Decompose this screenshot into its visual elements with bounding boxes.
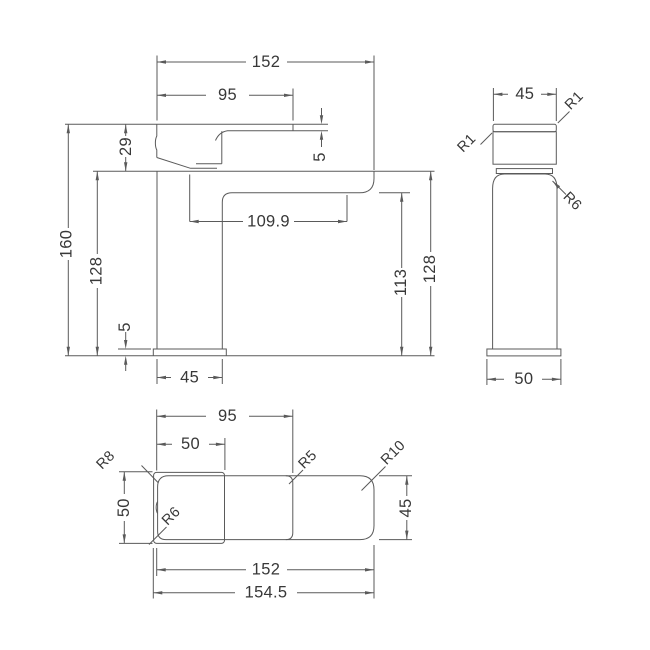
plan-view: 95 50 R8 R5 R10 R6 50 45 152 154.5 [94, 407, 415, 601]
plan-body-outline [158, 476, 374, 540]
side-seam-band [496, 169, 552, 174]
dim-front-height-right: 128 [421, 255, 439, 283]
dim-plan-overall-length: 154.5 [245, 584, 288, 602]
dim-plan-handle-length: 95 [218, 407, 237, 425]
dim-front-overall-height: 160 [57, 230, 75, 258]
dim-front-head-height: 29 [117, 137, 135, 156]
dim-front-handle-thickness: 5 [311, 152, 329, 161]
front-elevation-view: 152 95 29 5 160 128 109.9 113 128 45 5 [57, 53, 439, 387]
side-base-outline [487, 349, 561, 356]
dim-front-body-width: 45 [180, 368, 199, 386]
radius-label-plan-r5: R5 [296, 447, 321, 472]
dim-front-total-width: 152 [252, 53, 280, 71]
dim-front-height-left: 128 [88, 257, 106, 285]
faucet-dimension-drawing: 152 95 29 5 160 128 109.9 113 128 45 5 4… [0, 0, 650, 650]
radius-label-side-r1-right: R1 [562, 88, 587, 113]
dim-plan-base-width: 50 [115, 498, 133, 517]
dim-side-base-depth: 50 [514, 370, 533, 388]
side-handle-outline [493, 124, 556, 131]
radius-label-plan-r6: R6 [159, 504, 184, 529]
radius-label-plan-r10: R10 [378, 438, 409, 469]
radius-label-plan-r8: R8 [94, 448, 119, 473]
side-arrowheads [487, 93, 561, 381]
side-head-outline [493, 132, 556, 165]
plan-body-seam [286, 476, 293, 540]
dim-plan-body-length: 152 [252, 561, 280, 579]
side-body-outline [493, 174, 557, 349]
dim-front-spout-reach: 109.9 [247, 212, 290, 230]
dim-side-body-depth: 45 [515, 85, 534, 103]
technical-drawing-sheet: 152 95 29 5 160 128 109.9 113 128 45 5 4… [0, 0, 650, 650]
front-extension-lines [65, 56, 410, 385]
dim-front-handle-length: 95 [218, 86, 237, 104]
faucet-front-outline [65, 124, 435, 355]
plan-base-outline [154, 472, 225, 543]
dim-front-spout-underside-height: 113 [392, 269, 410, 296]
radius-label-side-r1-left: R1 [455, 131, 480, 156]
side-elevation-view: 45 R1 R1 R6 50 [455, 85, 587, 388]
dim-front-base-thickness: 5 [116, 322, 134, 331]
dim-plan-body-depth: 45 [397, 499, 415, 518]
dim-plan-base-length: 50 [181, 435, 200, 453]
radius-label-side-r6: R6 [560, 189, 585, 214]
